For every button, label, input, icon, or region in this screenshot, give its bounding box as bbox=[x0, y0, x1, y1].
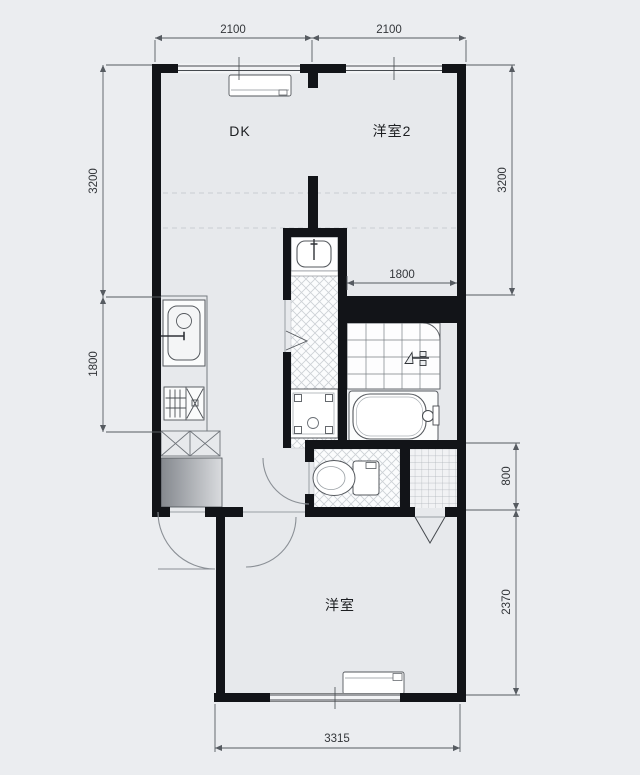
wall-corridor-left-lower bbox=[283, 352, 291, 448]
dim-label-right-1: 3200 bbox=[497, 167, 509, 193]
bathroom bbox=[347, 323, 440, 442]
wall-alcove-top bbox=[283, 228, 346, 237]
wall-entrance-south bbox=[445, 507, 466, 517]
dim-label-top-2: 2100 bbox=[376, 24, 402, 36]
entrance-tile-floor bbox=[410, 449, 457, 508]
washing-machine-pan bbox=[289, 389, 338, 438]
wall-right bbox=[457, 64, 466, 702]
air-conditioner-west bbox=[343, 672, 404, 694]
dim-label-right-3: 2370 bbox=[501, 589, 513, 615]
tub-faucet-icon bbox=[423, 411, 434, 422]
wall-entry-stub-left bbox=[152, 507, 170, 517]
wall-west2-south-thick bbox=[346, 296, 466, 323]
wall-corridor-left-upper bbox=[283, 237, 291, 300]
back-door-swing bbox=[158, 512, 215, 569]
floorplan-drawing: 2100 2100 3200 1800 3200 800 2370 3315 1… bbox=[0, 0, 640, 775]
wall-west-left bbox=[216, 507, 225, 702]
dim-ext-top bbox=[155, 40, 466, 62]
dim-label-inner: 1800 bbox=[389, 269, 415, 281]
wall-toilet-left-stub-top bbox=[305, 449, 314, 462]
room-label-western-room: 洋室 bbox=[325, 597, 355, 613]
bathtub bbox=[349, 391, 439, 442]
room-label-western-room-2: 洋室2 bbox=[373, 123, 412, 139]
dim-label-right-2: 800 bbox=[501, 466, 513, 485]
floorplan-canvas: 2100 2100 3200 1800 3200 800 2370 3315 1… bbox=[0, 0, 640, 775]
wall-toilet-right bbox=[400, 449, 410, 517]
dim-label-top-1: 2100 bbox=[220, 24, 246, 36]
room-label-dk: DK bbox=[229, 123, 250, 139]
wall-toilet-south bbox=[305, 507, 415, 517]
toilet-fixture bbox=[313, 461, 379, 496]
wall-corridor-right bbox=[338, 228, 347, 448]
dim-label-bottom: 3315 bbox=[324, 733, 350, 745]
kitchen-sink bbox=[161, 300, 205, 366]
washbasin-unit bbox=[291, 237, 338, 276]
shoe-cabinet bbox=[161, 458, 222, 507]
wall-left bbox=[152, 64, 161, 512]
gas-stove bbox=[164, 387, 204, 420]
wall-partition bbox=[308, 176, 318, 237]
air-conditioner-dk bbox=[229, 75, 291, 96]
dim-label-left-1: 3200 bbox=[88, 168, 100, 194]
dim-label-left-2: 1800 bbox=[88, 351, 100, 377]
wall-bath-south bbox=[305, 440, 466, 449]
wall-partition-stub bbox=[308, 72, 318, 88]
